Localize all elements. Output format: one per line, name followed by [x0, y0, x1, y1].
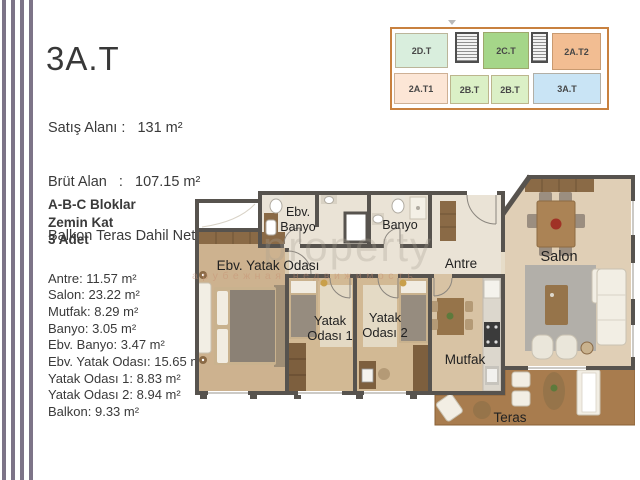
list-item: Mutfak: 8.29 m²	[48, 304, 206, 321]
keyplan-unit-label: 2B.T	[500, 85, 520, 95]
room-label-teras: Teras	[493, 410, 526, 425]
decorative-stripes	[0, 0, 34, 480]
chevron-down-icon	[448, 20, 456, 25]
keyplan-unit-label: 3A.T	[557, 84, 577, 94]
list-item: Ebv. Yatak Odası: 15.65 m²	[48, 354, 206, 371]
dining-chair	[527, 214, 538, 228]
keyplan-unit-2at2: 2A.T2	[552, 33, 601, 70]
stairwell-icon	[531, 32, 548, 63]
outdoor-chair	[512, 391, 530, 406]
list-item: Yatak Odası 2: 8.94 m²	[48, 387, 206, 404]
list-item: Balkon: 9.33 m²	[48, 404, 206, 421]
unit-info-block: A-B-C Bloklar Zemin Kat 3 Adet Antre: 11…	[48, 196, 206, 421]
side-table	[581, 342, 593, 354]
floor-plan: property зарубежная недвижимость Ebv. Ba…	[188, 173, 635, 435]
centerpiece	[551, 219, 562, 230]
laptop	[362, 369, 373, 382]
list-item: Ebv. Banyo: 3.47 m²	[48, 337, 206, 354]
room-label-salon: Salon	[540, 249, 577, 265]
keyplan-unit-2at1: 2A.T1	[394, 73, 448, 104]
armchair	[532, 335, 553, 359]
plant	[551, 385, 558, 392]
count-line: 3 Adet	[48, 231, 206, 249]
keyplan-unit-2ct: 2C.T	[483, 32, 529, 69]
room-label-yatak-odasi-2: Yatak	[369, 310, 402, 325]
page-title: 3A.T	[46, 40, 120, 78]
stove	[484, 322, 500, 347]
list-item: Banyo: 3.05 m²	[48, 321, 206, 338]
keyplan-unit-2dt: 2D.T	[395, 33, 448, 68]
cabinet	[440, 201, 456, 241]
room-label-banyo: Banyo	[382, 218, 417, 232]
keyplan-unit-3at-highlighted: 3A.T	[533, 73, 601, 104]
keyplan-unit-2bt-1: 2B.T	[450, 75, 489, 104]
floor-line: Zemin Kat	[48, 214, 206, 232]
chair	[378, 368, 390, 380]
blocks-line: A-B-C Bloklar	[48, 196, 206, 214]
room-label-yatak-odasi-2: Odası 2	[362, 325, 408, 340]
block-summary: A-B-C Bloklar Zemin Kat 3 Adet	[48, 196, 206, 249]
keyplan-unit-2bt-2: 2B.T	[491, 75, 529, 104]
room-label-ebv-banyo: Banyo	[280, 220, 315, 234]
room-area-list: Antre: 11.57 m² Salon: 23.22 m² Mutfak: …	[48, 271, 206, 421]
stairwell-icon	[455, 32, 479, 63]
outdoor-chair	[512, 372, 530, 387]
keyplan-unit-label: 2A.T1	[409, 84, 434, 94]
room-label-antre: Antre	[445, 256, 477, 271]
sofa	[597, 269, 626, 345]
round-table	[473, 401, 491, 419]
wardrobe	[289, 343, 306, 391]
wardrobe	[413, 345, 428, 391]
keyplan-unit-label: 2B.T	[460, 85, 480, 95]
list-item: Salon: 23.22 m²	[48, 287, 206, 304]
room-label-mutfak: Mutfak	[445, 352, 486, 367]
keyplan-unit-label: 2A.T2	[564, 47, 589, 57]
keyplan-unit-label: 2D.T	[412, 46, 432, 56]
room-label-ebv-banyo: Ebv.	[286, 205, 310, 219]
chair	[465, 319, 473, 330]
coffee-table	[545, 285, 568, 325]
list-item: Yatak Odası 1: 8.83 m²	[48, 371, 206, 388]
room-label-ebv-yatak-odasi: Ebv. Yatak Odası	[217, 258, 320, 273]
list-item: Antre: 11.57 m²	[48, 271, 206, 288]
room-label-yatak-odasi-1: Odası 1	[307, 328, 353, 343]
armchair	[556, 335, 577, 359]
keyplan-unit-label: 2C.T	[496, 46, 516, 56]
building-key-plan: 2D.T 2C.T 2A.T2 2A.T1 2B.T 2B.T 3A.T	[390, 27, 609, 110]
chair	[465, 301, 473, 312]
sofa	[197, 283, 211, 353]
toilet	[392, 199, 404, 213]
room-antre-furniture	[440, 201, 456, 241]
room-label-yatak-odasi-1: Yatak	[314, 313, 347, 328]
toilet	[270, 199, 282, 213]
sink	[325, 197, 334, 204]
sales-area-line: Satış Alanı : 131 m²	[48, 119, 293, 137]
dining-chair	[574, 214, 585, 228]
fridge	[484, 280, 500, 298]
plant	[447, 313, 454, 320]
